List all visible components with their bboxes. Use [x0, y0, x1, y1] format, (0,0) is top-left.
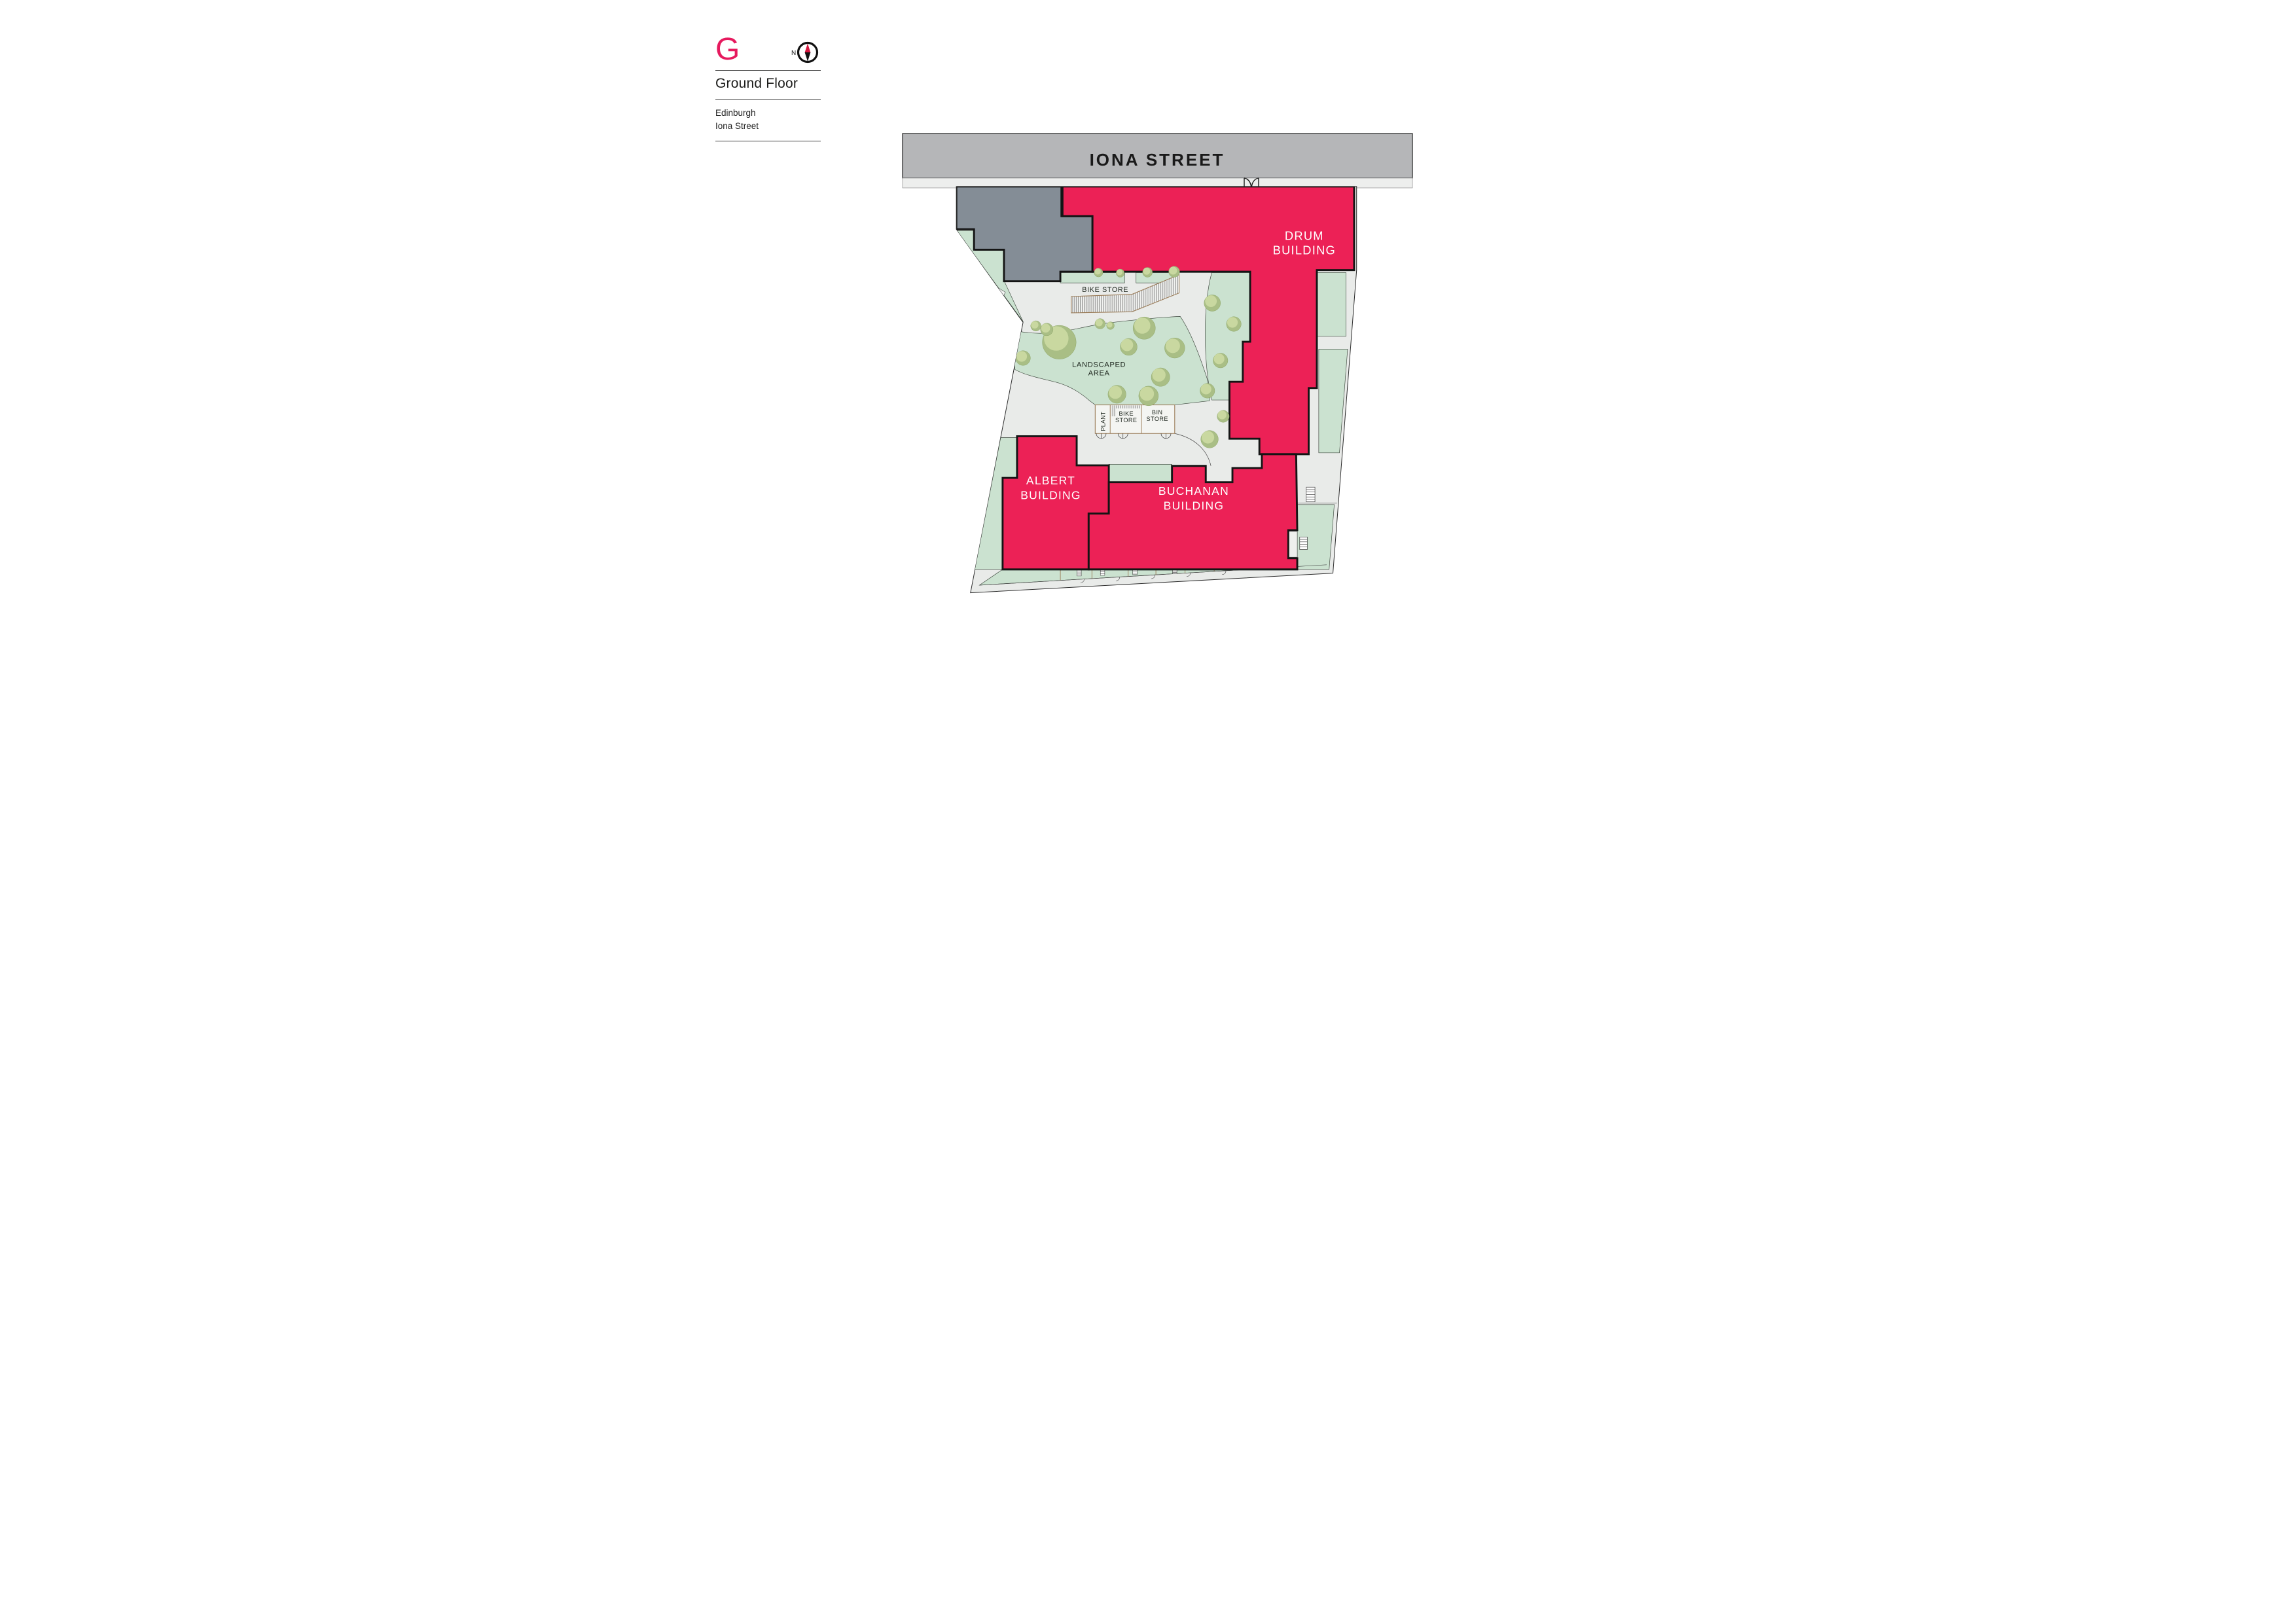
tree [1108, 386, 1126, 403]
tree [1151, 368, 1170, 386]
ladder-icon [1133, 569, 1138, 574]
tree [1133, 317, 1155, 339]
bike-store-small-label-line2: STORE [1115, 417, 1137, 424]
road-iona-street: IONA STREET [903, 134, 1412, 189]
tree [1143, 267, 1153, 277]
plant-label: PLANT [1100, 411, 1106, 431]
buchanan-building-label-line2: BUILDING [1164, 499, 1225, 512]
tree [1116, 269, 1124, 277]
tree [1201, 431, 1219, 448]
landscaped-area-label-line1: LANDSCAPED [1072, 361, 1126, 369]
tree [1164, 338, 1185, 358]
albert-building-label-line1: ALBERT [1026, 474, 1075, 487]
tree [1031, 321, 1041, 331]
green-strip [1060, 272, 1124, 283]
landscaped-area-label-line2: AREA [1088, 370, 1110, 378]
bin-store-label-line2: STORE [1146, 416, 1168, 422]
drum-building-label-line1: DRUM [1285, 228, 1324, 242]
tree [1139, 386, 1158, 406]
stairs-icon [1306, 487, 1315, 501]
tree [1016, 351, 1030, 365]
buchanan-building-label-line1: BUCHANAN [1158, 484, 1229, 497]
drum-building-label-line2: BUILDING [1273, 243, 1336, 257]
green-east-upper [1317, 272, 1346, 336]
tree [1200, 384, 1215, 398]
ladder-icon [1077, 570, 1081, 576]
tree [1121, 338, 1138, 355]
site-plan: IONA STREET [642, 0, 1654, 716]
floorplan-page: G N Ground Floor Edinburgh Iona Street [642, 0, 1654, 716]
ladder-icon [1100, 570, 1105, 575]
tree [1095, 319, 1105, 329]
green-court-strip [1109, 464, 1172, 482]
tree [1204, 295, 1221, 311]
bike-store-small-label-line1: BIKE [1119, 410, 1134, 417]
bin-store-label-line1: BIN [1152, 409, 1163, 416]
tree [1107, 322, 1115, 330]
tree [1169, 266, 1180, 278]
tree [1041, 323, 1053, 336]
street-label: IONA STREET [1090, 150, 1225, 170]
tree [1227, 317, 1241, 331]
tree [1217, 410, 1229, 422]
albert-building-label-line2: BUILDING [1020, 489, 1081, 502]
tree [1213, 353, 1227, 368]
bike-store-main-label: BIKE STORE [1082, 286, 1128, 294]
tree [1094, 268, 1103, 277]
